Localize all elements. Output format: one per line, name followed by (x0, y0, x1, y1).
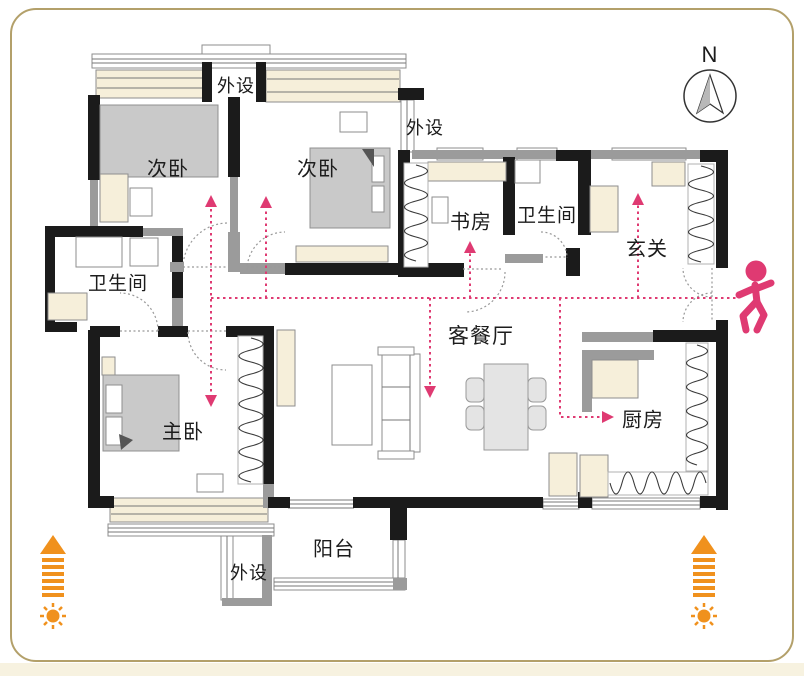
desk-study (428, 162, 506, 181)
room-label-kitchen: 厨房 (622, 404, 664, 433)
room-label-master-bedroom: 主卧 (162, 416, 204, 445)
walking-person-icon (739, 261, 771, 331)
dining-chair (528, 406, 546, 430)
dining-chair (466, 406, 484, 430)
sunlight-arrow-left (40, 535, 66, 629)
cabinet-entry-top (652, 162, 685, 186)
nightstand-bedroom-left (130, 188, 152, 216)
kitchen-cabinet (580, 455, 608, 497)
floorplan-canvas: 外设 次卧 次卧 外设 书房 卫生间 玄关 卫生间 客餐厅 主卧 厨房 阳台 外… (0, 0, 804, 676)
room-label-study: 书房 (450, 206, 492, 235)
room-label-utility-right: 外设 (406, 114, 444, 140)
dining-table (484, 364, 528, 450)
kitchen-counter (592, 360, 638, 398)
bench-bedroom-middle (296, 246, 388, 262)
room-label-utility-bottom: 外设 (230, 559, 268, 585)
compass-label: N (702, 42, 719, 68)
room-label-bathroom-top: 卫生间 (517, 201, 577, 228)
room-label-living-dining: 客餐厅 (448, 320, 514, 350)
cabinet-living-kitchen (549, 453, 577, 496)
room-label-bedroom-left: 次卧 (147, 153, 189, 182)
wardrobe-bedroom-left (100, 174, 128, 222)
room-label-bathroom-left: 卫生间 (88, 269, 148, 296)
nightstand-bedroom-middle (340, 112, 367, 132)
sun-icon (40, 603, 66, 629)
north-compass-icon (684, 70, 736, 122)
floorplan-drawing (0, 0, 804, 676)
dining-chair (528, 378, 546, 402)
sofa (382, 354, 420, 452)
fixture-bathroom-top (515, 160, 540, 183)
dining-chair (466, 378, 484, 402)
room-label-balcony: 阳台 (313, 533, 355, 562)
coffee-table (332, 365, 372, 445)
tv-cabinet (277, 330, 295, 406)
cabinet-entry-left (590, 186, 618, 232)
room-label-bedroom-middle: 次卧 (297, 153, 339, 182)
room-label-entry: 玄关 (626, 233, 668, 262)
room-label-utility-top: 外设 (217, 72, 255, 98)
sun-icon (691, 603, 717, 629)
sunlight-arrow-right (691, 535, 717, 629)
chair-study (432, 197, 448, 223)
sink-bathroom-left (76, 237, 122, 267)
nightstand-master (197, 474, 223, 492)
toilet-bathroom-left (130, 238, 158, 266)
